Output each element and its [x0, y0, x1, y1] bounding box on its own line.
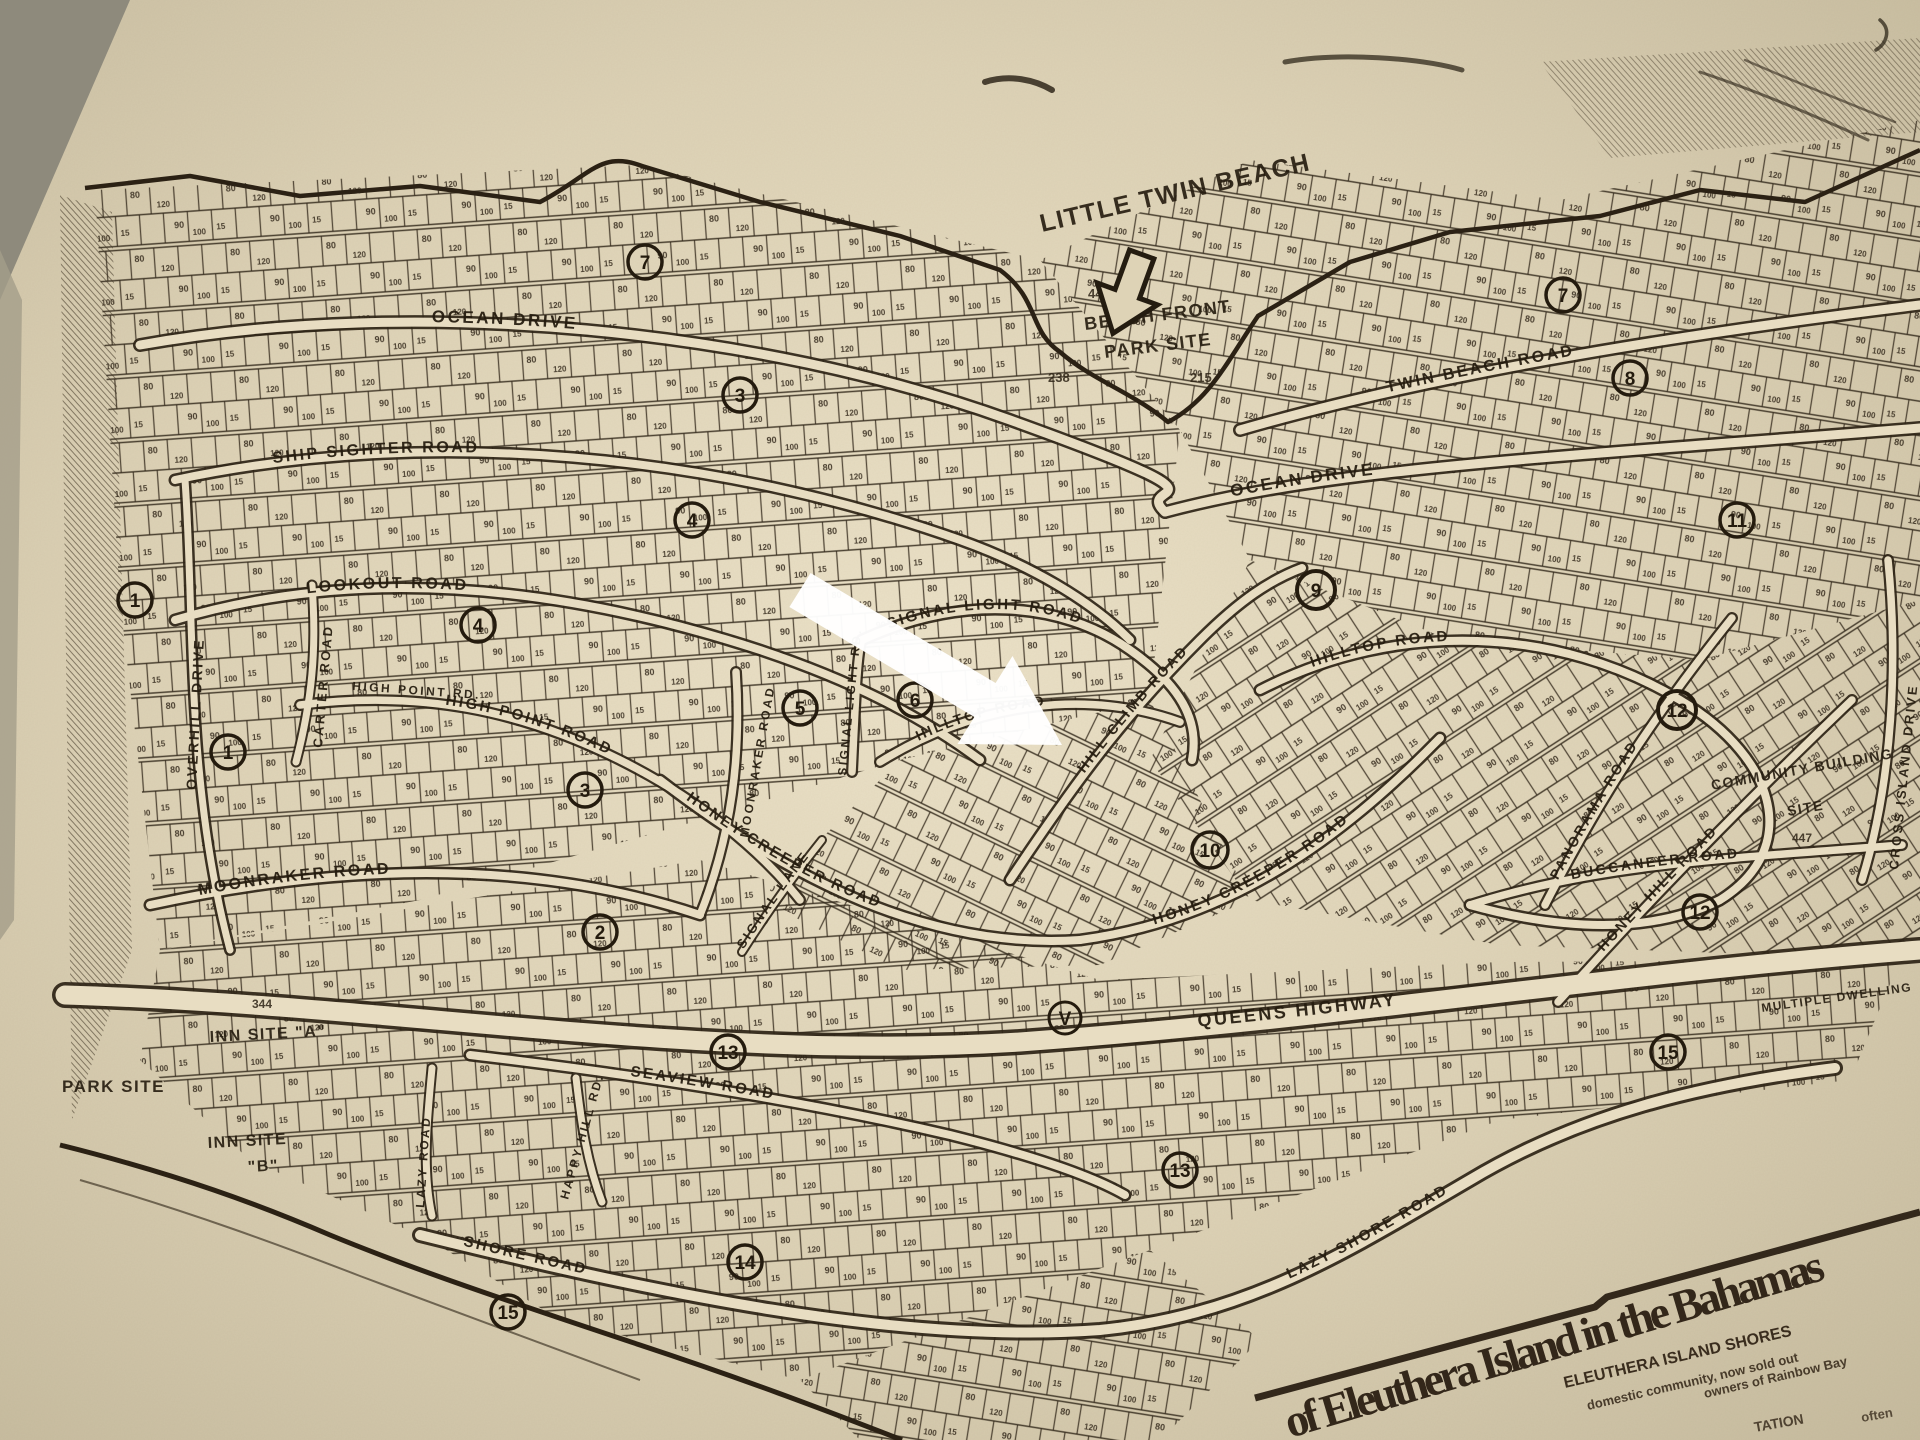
park-site-label: PARK SITE — [62, 1077, 165, 1096]
scanned-plat-map-photo: 80 120 90 15 100 — [0, 0, 1920, 1440]
dim-344: 344 — [252, 997, 272, 1011]
section-number: 10 — [1199, 841, 1220, 862]
section-number: 4 — [687, 511, 698, 532]
plat-map-svg: 80 120 90 15 100 — [0, 0, 1920, 1440]
section-number: 1 — [130, 591, 141, 612]
dim-215: 215 — [1190, 370, 1212, 385]
section-number: 8 — [1625, 369, 1636, 390]
section-number: 12 — [1666, 701, 1687, 722]
section-number: 11 — [1727, 511, 1748, 532]
section-number: V — [1059, 1009, 1072, 1030]
section-number: 15 — [1657, 1043, 1679, 1064]
section-number: 5 — [795, 699, 806, 720]
section-number: 3 — [580, 781, 591, 802]
section-number: 14 — [734, 1253, 756, 1274]
section-number: 7 — [640, 253, 651, 274]
section-number: 12 — [1689, 903, 1710, 924]
section-number: 13 — [1169, 1161, 1190, 1182]
inn-site-b-line2: "B" — [247, 1157, 279, 1176]
section-number: 1 — [223, 743, 234, 764]
section-number: 2 — [595, 923, 606, 944]
section-number: 9 — [1311, 581, 1322, 602]
section-number: 6 — [910, 691, 921, 712]
section-number: 7 — [1558, 286, 1569, 307]
section-number: 13 — [717, 1043, 738, 1064]
dim-447b: 447 — [1792, 831, 1812, 845]
section-number: 3 — [735, 386, 746, 407]
dim-238: 238 — [1048, 370, 1070, 385]
section-number: 4 — [473, 616, 484, 637]
section-number: 15 — [497, 1303, 519, 1324]
